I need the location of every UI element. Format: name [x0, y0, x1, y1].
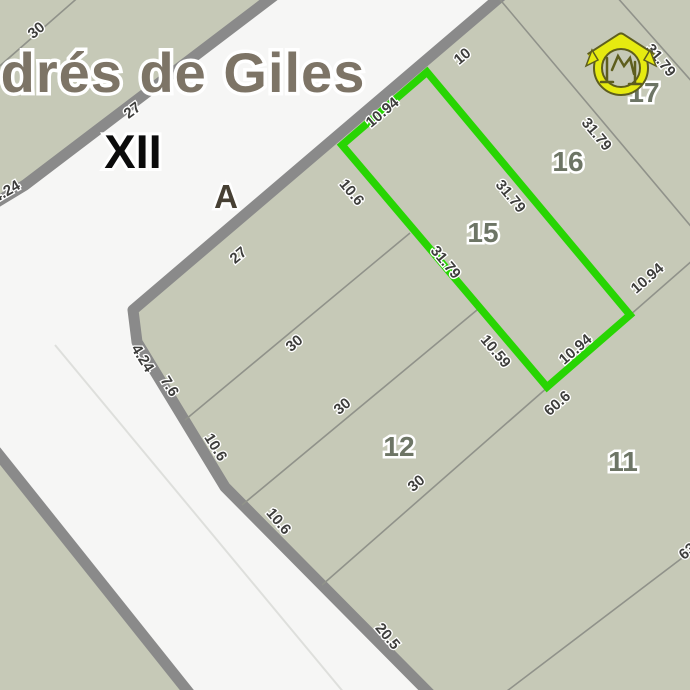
parcel-label-12[interactable]: 12: [383, 431, 414, 462]
cadastral-map: 30 27 4.24 27 10.94 10 10.6 31.79 10.59 …: [0, 0, 690, 690]
parcel-label-15[interactable]: 15: [467, 217, 498, 248]
block-letter-label: A: [214, 178, 238, 215]
parcel-label-16[interactable]: 16: [552, 146, 583, 177]
place-name-label: drés de Giles: [1, 41, 366, 104]
parcel-label-11[interactable]: 11: [608, 446, 638, 477]
zone-roman-label: XII: [104, 125, 161, 178]
cadastral-map-viewport[interactable]: 30 27 4.24 27 10.94 10 10.6 31.79 10.59 …: [0, 0, 690, 690]
